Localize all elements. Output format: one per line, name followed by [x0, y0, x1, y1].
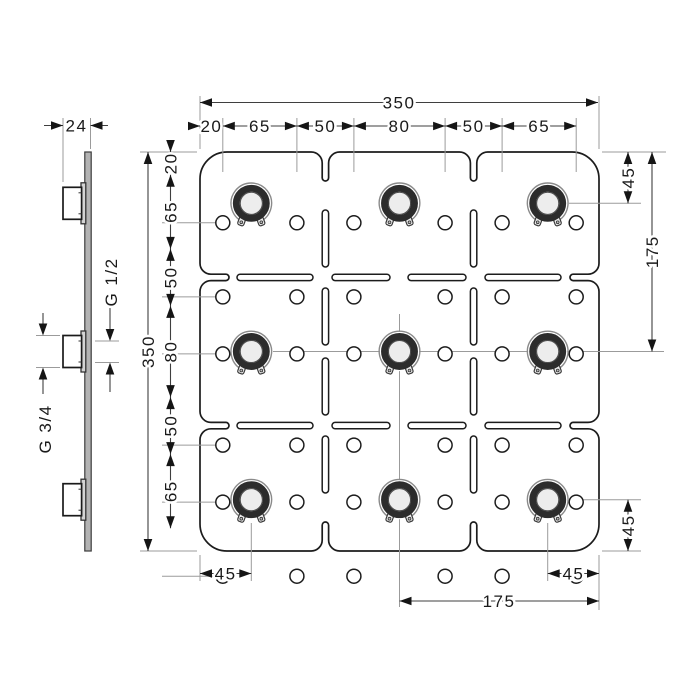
arrowhead	[166, 249, 175, 261]
circlip-eye-right	[556, 369, 559, 372]
screw-hole	[347, 438, 361, 452]
arrowhead	[223, 122, 235, 131]
arrowhead	[624, 500, 633, 512]
screw-hole	[569, 216, 583, 230]
arrowhead	[166, 140, 175, 152]
screw-hole	[347, 495, 361, 509]
screw-hole	[347, 569, 361, 583]
plate-slot	[408, 422, 466, 428]
screw-hole	[495, 569, 509, 583]
screw-hole	[216, 290, 230, 304]
arrowhead	[106, 363, 115, 375]
arrowhead	[342, 122, 354, 131]
arrowhead	[285, 122, 297, 131]
plate-slot	[332, 274, 390, 280]
plate-slot	[322, 436, 328, 493]
dim-overall-height: 350	[139, 335, 158, 368]
circlip-eye-left	[388, 369, 391, 372]
screw-hole	[569, 438, 583, 452]
dim-right-middle: 175	[643, 235, 662, 268]
arrowhead	[648, 152, 657, 164]
arrowhead	[548, 569, 560, 578]
circlip-eye-left	[536, 369, 539, 372]
dim-top-chain-3: 80	[389, 117, 411, 136]
dim-side-depth: 24	[66, 116, 88, 135]
arrowhead	[586, 98, 598, 107]
dim-top-chain-1: 65	[249, 117, 271, 136]
dim-right-top: 45	[619, 167, 638, 189]
screw-hole	[347, 347, 361, 361]
circlip-eye-right	[260, 517, 263, 520]
dim-left-chain-4: 50	[161, 415, 180, 437]
dim-right-bottom: 45	[619, 514, 638, 536]
circlip-eye-right	[556, 517, 559, 520]
dim-top-chain-4: 50	[463, 117, 485, 136]
arrowhead	[587, 597, 599, 606]
screw-hole	[290, 347, 304, 361]
arrowhead	[354, 122, 366, 131]
screw-hole	[438, 438, 452, 452]
screw-hole	[495, 495, 509, 509]
screw-hole	[438, 495, 452, 509]
screw-hole	[495, 347, 509, 361]
arrowhead	[400, 597, 412, 606]
screw-hole	[216, 438, 230, 452]
dim-bottom-right: 45	[562, 564, 584, 583]
arrowhead	[166, 294, 175, 306]
circlip-eye-right	[408, 221, 411, 224]
dim-overall-width: 350	[383, 93, 416, 112]
screw-hole	[347, 216, 361, 230]
arrowhead	[624, 191, 633, 203]
arrowhead	[166, 397, 175, 409]
side-view	[63, 152, 91, 551]
arrowhead	[144, 152, 153, 164]
circlip-eye-right	[260, 369, 263, 372]
arrowhead	[166, 516, 175, 528]
arrowhead	[166, 385, 175, 397]
arrowhead	[297, 122, 309, 131]
side-connector-box	[63, 336, 82, 368]
screw-hole	[438, 569, 452, 583]
circlip-eye-left	[536, 221, 539, 224]
arrowhead	[587, 569, 599, 578]
screw-hole	[569, 347, 583, 361]
screw-hole	[290, 216, 304, 230]
screw-hole	[495, 438, 509, 452]
label-thread-g34: G 3/4	[36, 404, 55, 453]
screw-hole	[495, 216, 509, 230]
screw-hole	[290, 495, 304, 509]
arrowhead	[624, 152, 633, 164]
screw-hole	[216, 216, 230, 230]
side-connector-box	[63, 187, 82, 219]
plate-slot	[485, 422, 561, 428]
arrowhead	[490, 122, 502, 131]
plate-slot	[485, 274, 561, 280]
arrowhead	[166, 306, 175, 318]
dim-left-chain-0: 20	[161, 152, 180, 174]
dim-top-chain-0: 20	[200, 117, 222, 136]
arrowhead	[564, 122, 576, 131]
label-thread-g12: G 1/2	[102, 257, 121, 306]
plate-slot	[322, 210, 328, 267]
arrowhead	[166, 454, 175, 466]
arrowhead	[188, 122, 200, 131]
arrowhead	[166, 442, 175, 454]
plate-slot	[332, 422, 390, 428]
dim-top-chain-2: 50	[314, 117, 336, 136]
dim-bottom-left: 45	[215, 564, 237, 583]
arrowhead	[433, 122, 445, 131]
plate-slot	[470, 288, 476, 345]
circlip-eye-right	[260, 221, 263, 224]
arrowhead	[144, 539, 153, 551]
plate-slot	[470, 358, 476, 415]
circlip-eye-left	[240, 517, 243, 520]
arrowhead	[239, 569, 251, 578]
arrowhead	[166, 175, 175, 187]
plate-slot	[237, 274, 313, 280]
arrowhead	[200, 98, 212, 107]
circlip-eye-right	[556, 221, 559, 224]
screw-hole	[290, 569, 304, 583]
plate-slot	[322, 358, 328, 415]
dim-left-chain-5: 65	[161, 480, 180, 502]
arrowhead	[39, 324, 48, 336]
arrowhead	[39, 368, 48, 380]
arrowhead	[166, 237, 175, 249]
screw-hole	[569, 495, 583, 509]
screw-hole	[438, 216, 452, 230]
plate-slot	[470, 436, 476, 493]
plate-slot	[322, 288, 328, 345]
circlip-eye-left	[536, 517, 539, 520]
dim-top-chain-5: 65	[528, 117, 550, 136]
screw-hole	[290, 290, 304, 304]
arrowhead	[648, 340, 657, 352]
installation-drawing: 350 20 65 50 80 50 65 45 175 45 24 350 2…	[0, 0, 700, 700]
dim-left-chain-2: 50	[161, 266, 180, 288]
arrowhead	[445, 122, 457, 131]
circlip-eye-right	[408, 517, 411, 520]
arrowhead	[624, 539, 633, 551]
screw-hole	[347, 290, 361, 304]
dim-bottom-middle: 175	[483, 592, 516, 611]
technical-drawing-canvas: 350 20 65 50 80 50 65 45 175 45 24 350 2…	[0, 0, 700, 700]
screw-hole	[216, 347, 230, 361]
screw-hole	[290, 438, 304, 452]
circlip-eye-left	[240, 221, 243, 224]
plate-slot	[237, 422, 313, 428]
arrowhead	[502, 122, 514, 131]
dim-left-chain-3: 80	[161, 341, 180, 363]
circlip-eye-left	[240, 369, 243, 372]
arrowhead	[106, 329, 115, 341]
screw-hole	[438, 347, 452, 361]
circlip-eye-left	[388, 221, 391, 224]
screw-hole	[216, 495, 230, 509]
plate-slot	[470, 210, 476, 267]
circlip-eye-right	[408, 369, 411, 372]
screw-hole	[438, 290, 452, 304]
arrowhead	[51, 121, 63, 130]
side-connector-box	[63, 484, 82, 516]
dim-left-chain-1: 65	[161, 201, 180, 223]
arrowhead	[91, 121, 103, 130]
plate-slot	[408, 274, 466, 280]
screw-hole	[495, 290, 509, 304]
screw-hole	[569, 290, 583, 304]
circlip-eye-left	[388, 517, 391, 520]
